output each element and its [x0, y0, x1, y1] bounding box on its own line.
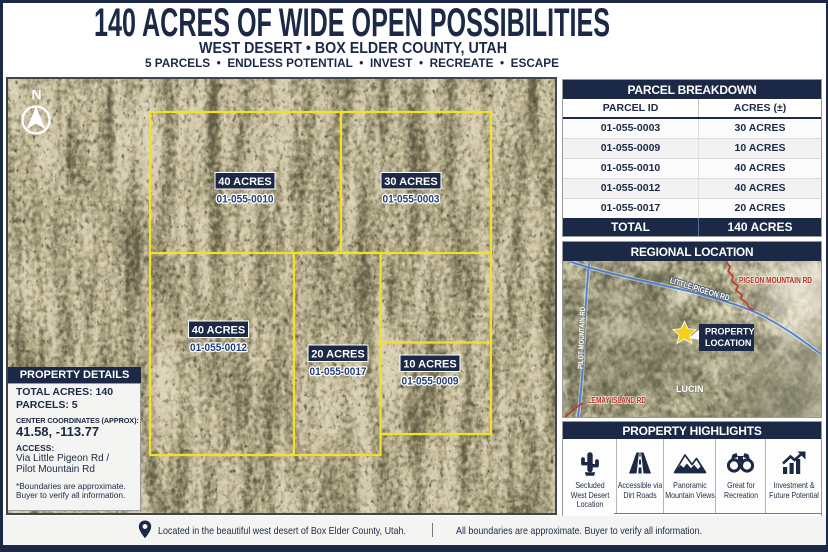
svg-text:40 ACRES: 40 ACRES — [192, 325, 245, 337]
svg-text:01-055-0012: 01-055-0012 — [190, 342, 247, 354]
svg-text:10 ACRES: 10 ACRES — [403, 359, 456, 371]
svg-text:LUCIN: LUCIN — [676, 384, 704, 394]
svg-text:01-055-0009: 01-055-0009 — [402, 376, 459, 388]
svg-text:PIGEON MOUNTAIN RD: PIGEON MOUNTAIN RD — [739, 276, 812, 285]
svg-text:LEMAY ISLAND RD: LEMAY ISLAND RD — [588, 396, 646, 405]
svg-text:40 ACRES: 40 ACRES — [218, 176, 271, 188]
svg-text:LOCATION: LOCATION — [705, 338, 751, 348]
svg-text:20 ACRES: 20 ACRES — [311, 349, 364, 361]
svg-text:01-055-0010: 01-055-0010 — [217, 194, 274, 206]
svg-text:5 PARCELS • ENDLESS POTENTIA: 5 PARCELS • ENDLESS POTENTIAL • INVEST •… — [145, 58, 559, 70]
svg-text:140 ACRES OF WIDE OPEN POSSIBI: 140 ACRES OF WIDE OPEN POSSIBILITIES — [94, 1, 610, 45]
svg-text:01-055-0017: 01-055-0017 — [310, 366, 367, 378]
svg-text:N: N — [31, 87, 41, 103]
svg-text:01-055-0003: 01-055-0003 — [383, 194, 440, 206]
svg-text:PROPERTY: PROPERTY — [705, 327, 755, 337]
svg-text:WEST DESERT • BOX ELDER COUNTY: WEST DESERT • BOX ELDER COUNTY, UTAH — [199, 40, 507, 57]
svg-text:30 ACRES: 30 ACRES — [384, 176, 437, 188]
